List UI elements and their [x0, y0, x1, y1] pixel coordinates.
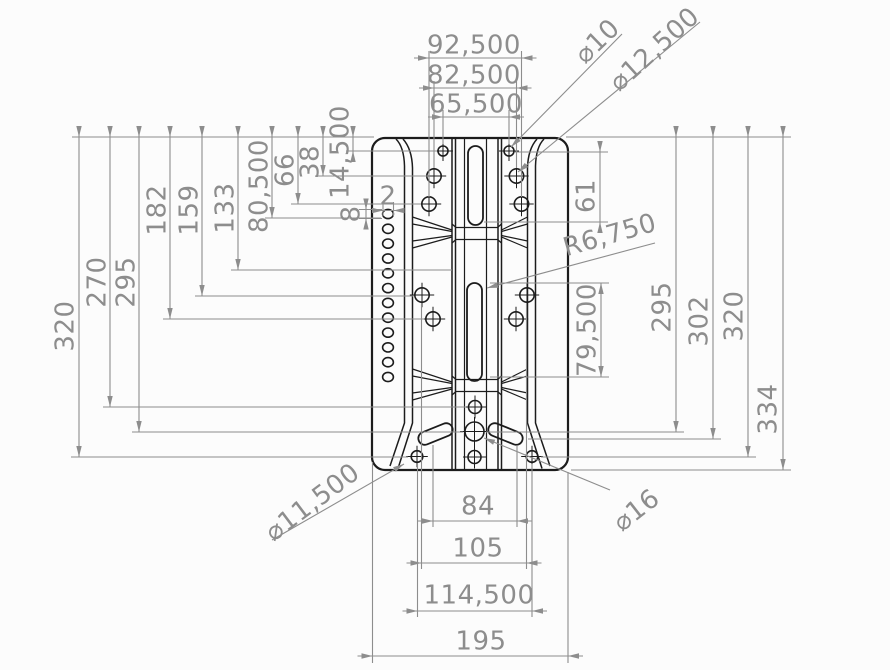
dim-arrow	[745, 446, 750, 457]
dim-arrow	[407, 608, 418, 613]
hole-pattern	[383, 141, 543, 469]
slot-middle	[467, 283, 482, 381]
dim-arrow	[597, 141, 602, 152]
dim-label: 65,500	[429, 90, 523, 120]
small-hole	[383, 239, 394, 248]
dim-label: 334	[754, 383, 784, 434]
center-rails	[452, 139, 502, 469]
drawing-page: 32027029518215913380,500663814,5006179,5…	[0, 0, 890, 670]
dim-arrow	[235, 126, 240, 137]
dim-label: 61	[572, 179, 602, 213]
dim-label: 133	[211, 182, 241, 233]
dim-label: ⌀10	[569, 13, 626, 69]
dim-arrow	[745, 126, 750, 137]
dim-label: 114,500	[423, 581, 534, 611]
center-mark-icon	[504, 307, 528, 331]
dim-label: 92,500	[427, 31, 521, 61]
small-hole	[383, 372, 394, 381]
dim-label: ⌀12,500	[604, 2, 706, 98]
dim-label: ⌀16	[608, 483, 666, 538]
slot-bottom-left-angled	[416, 421, 454, 447]
dimension-annotations: 32027029518215913380,500663814,5006179,5…	[51, 2, 792, 663]
dim-label: 105	[452, 534, 503, 564]
small-hole	[383, 313, 394, 322]
dim-label: 82,500	[427, 61, 521, 91]
dim-label: 84	[461, 492, 495, 522]
dim-arrow	[295, 126, 300, 137]
dim-arrow	[76, 126, 81, 137]
dim-label: 295	[648, 281, 678, 332]
small-hole	[383, 298, 394, 307]
dim-arrow	[107, 396, 112, 407]
dim-arrow	[780, 126, 785, 137]
dim-label: 14,500	[326, 105, 356, 199]
part-view	[372, 138, 568, 470]
part-outline	[372, 138, 568, 470]
dim-arrow	[167, 126, 172, 137]
dim-label: 295	[112, 256, 142, 307]
dim-label: 182	[143, 184, 173, 235]
small-hole	[383, 358, 394, 367]
left-upper-ribs	[413, 217, 453, 248]
dim-arrow	[362, 653, 373, 658]
small-hole	[383, 284, 394, 293]
leader-line	[484, 438, 610, 490]
right-lower-ribs	[502, 369, 528, 400]
slot-top	[468, 146, 483, 225]
dim-arrow	[710, 428, 715, 439]
dim-arrow	[107, 126, 112, 137]
dim-arrow	[422, 518, 433, 523]
small-hole	[383, 343, 394, 352]
center-mark-icon	[464, 396, 487, 419]
dim-arrow	[199, 126, 204, 137]
dim-label: 38	[296, 145, 326, 179]
dim-label: 8	[337, 205, 367, 222]
dim-arrow	[484, 438, 495, 445]
small-hole	[383, 328, 394, 337]
dim-arrow	[568, 653, 579, 658]
left-lower-ribs	[413, 369, 453, 400]
dim-label: 302	[685, 295, 715, 346]
small-hole	[383, 254, 394, 263]
center-mark-icon	[421, 307, 445, 331]
dim-arrow	[76, 446, 81, 457]
right-flange-profile	[528, 139, 551, 469]
center-mark-icon	[410, 283, 434, 307]
dim-arrow	[235, 259, 240, 270]
dim-arrow	[522, 55, 533, 60]
engineering-drawing-canvas: 32027029518215913380,500663814,5006179,5…	[0, 0, 890, 670]
dim-label: ⌀11,500	[260, 457, 366, 547]
dim-arrow	[136, 421, 141, 432]
lower-waist-joint	[452, 376, 502, 395]
dim-arrow	[136, 126, 141, 137]
center-mark-icon	[463, 446, 486, 469]
dim-arrow	[710, 126, 715, 137]
dim-label: 320	[720, 290, 750, 341]
small-hole	[383, 224, 394, 233]
dim-arrow	[167, 308, 172, 319]
dim-arrow	[295, 193, 300, 204]
dim-arrow	[199, 285, 204, 296]
dim-label: 159	[175, 184, 205, 235]
dim-label: 2	[379, 182, 396, 212]
dim-arrow	[269, 126, 274, 137]
dim-arrow	[673, 421, 678, 432]
dim-label: 320	[51, 300, 81, 351]
dim-label: 195	[455, 627, 506, 657]
upper-waist-joint	[452, 224, 502, 243]
dim-arrow	[780, 459, 785, 470]
dim-arrow	[673, 126, 678, 137]
dim-label: 270	[83, 256, 113, 307]
dim-label: 79,500	[573, 283, 603, 377]
dim-arrow	[411, 560, 422, 565]
